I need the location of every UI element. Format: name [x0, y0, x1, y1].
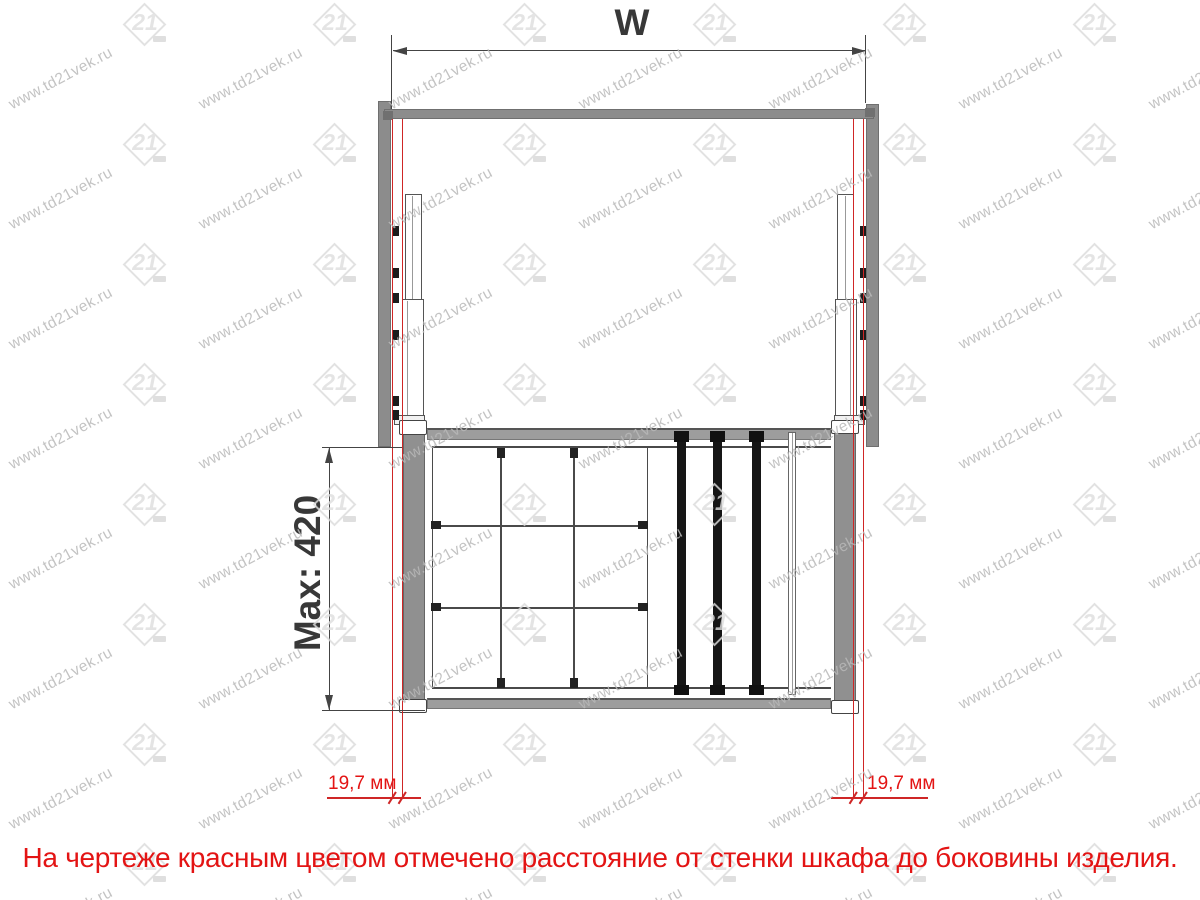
wire-connector [497, 448, 505, 458]
watermark-logo-tag [1103, 876, 1116, 882]
watermark-text: www.td21vek.ru [576, 44, 686, 114]
watermark-logo-number: 21 [321, 9, 349, 36]
watermark-text: www.td21vek.ru [956, 404, 1066, 474]
max-extension-bottom [322, 710, 425, 711]
watermark-logo-number: 21 [891, 609, 919, 636]
watermark-diamond-outline [503, 123, 547, 167]
watermark-logo-tag [153, 276, 166, 282]
watermark-logo-tag [913, 756, 926, 762]
watermark-logo-tag [1103, 156, 1116, 162]
watermark-21-logo-icon: 21 [122, 722, 168, 768]
watermark-diamond-outline [503, 723, 547, 767]
watermark-logo-number: 21 [701, 369, 729, 396]
rack-slat-foot [674, 685, 689, 695]
watermark-21-logo-icon: 21 [692, 722, 738, 768]
watermark-text: www.td21vek.ru [956, 644, 1066, 714]
watermark-text: www.td21vek.ru [576, 764, 686, 834]
cabinet-right-wall [866, 104, 879, 447]
watermark-21-logo-icon: 21 [502, 2, 548, 48]
watermark-diamond-outline [123, 363, 167, 407]
watermark-diamond-outline [883, 483, 927, 527]
watermark-logo-number: 21 [891, 369, 919, 396]
watermark-logo-number: 21 [891, 129, 919, 156]
watermark-text: www.td21vek.ru [196, 284, 306, 354]
watermark-diamond-outline [883, 123, 927, 167]
watermark-diamond-outline [693, 723, 737, 767]
watermark-text: www.td21vek.ru [196, 764, 306, 834]
watermark-logo-tag [723, 276, 736, 282]
watermark-diamond-outline [123, 483, 167, 527]
watermark-21-logo-icon: 21 [1072, 722, 1118, 768]
watermark-diamond-outline [883, 603, 927, 647]
rack-slat [713, 432, 722, 695]
watermark-21-logo-icon: 21 [882, 482, 928, 528]
watermark-logo-tag [533, 396, 546, 402]
watermark-21-logo-icon: 21 [882, 242, 928, 288]
wire-basket-frame [432, 446, 648, 689]
watermark-text: www.td21vek.ru [1146, 44, 1200, 114]
watermark-logo-number: 21 [701, 249, 729, 276]
rack-slat [752, 432, 761, 695]
rack-slat-head [674, 431, 689, 442]
watermark-diamond-outline [1073, 603, 1117, 647]
watermark-text: www.td21vek.ru [956, 524, 1066, 594]
watermark-logo-tag [723, 396, 736, 402]
watermark-text: www.td21vek.ru [1146, 644, 1200, 714]
watermark-text: www.td21vek.ru [956, 284, 1066, 354]
watermark-logo-tag [913, 276, 926, 282]
max-extension-top [322, 447, 402, 448]
watermark-diamond-outline [1073, 123, 1117, 167]
watermark-21-logo-icon: 21 [1072, 242, 1118, 288]
watermark-logo-tag [723, 876, 736, 882]
watermark-logo-tag [723, 636, 736, 642]
watermark-diamond-outline [1073, 723, 1117, 767]
watermark-logo-tag [343, 156, 356, 162]
watermark-text: www.td21vek.ru [6, 404, 116, 474]
watermark-logo-tag [533, 756, 546, 762]
watermark-diamond-outline [1073, 363, 1117, 407]
watermark-logo-tag [1103, 36, 1116, 42]
watermark-diamond-outline [313, 363, 357, 407]
watermark-logo-tag [913, 396, 926, 402]
watermark-diamond-outline [313, 123, 357, 167]
watermark-21-logo-icon: 21 [1072, 362, 1118, 408]
watermark-text: www.td21vek.ru [6, 164, 116, 234]
watermark-text: www.td21vek.ru [956, 44, 1066, 114]
watermark-21-logo-icon: 21 [312, 242, 358, 288]
watermark-logo-number: 21 [701, 9, 729, 36]
watermark-text: www.td21vek.ru [766, 884, 876, 900]
w-arrow-right [852, 47, 866, 55]
watermark-logo-tag [723, 36, 736, 42]
watermark-logo-number: 21 [131, 729, 159, 756]
watermark-21-logo-icon: 21 [122, 602, 168, 648]
watermark-text: www.td21vek.ru [1146, 884, 1200, 900]
watermark-diamond-outline [1073, 483, 1117, 527]
watermark-diamond-outline [123, 243, 167, 287]
max-dimension-line [329, 448, 330, 710]
watermark-diamond-outline [503, 3, 547, 47]
offset-label-right: 19,7 мм [867, 773, 935, 795]
watermark-logo-tag [153, 396, 166, 402]
watermark-text: www.td21vek.ru [766, 524, 876, 594]
cabinet-left-wall [378, 101, 391, 447]
watermark-21-logo-icon: 21 [882, 122, 928, 168]
watermark-logo-number: 21 [131, 9, 159, 36]
cabinet-corner-right [865, 108, 875, 117]
watermark-logo-number: 21 [131, 129, 159, 156]
right-post-cap-top [831, 420, 859, 434]
watermark-text: www.td21vek.ru [6, 284, 116, 354]
watermark-logo-number: 21 [321, 369, 349, 396]
watermark-logo-tag [913, 36, 926, 42]
watermark-21-logo-icon: 21 [122, 362, 168, 408]
watermark-logo-number: 21 [891, 729, 919, 756]
watermark-logo-tag [153, 636, 166, 642]
watermark-diamond-outline [123, 603, 167, 647]
wire-vertical [573, 447, 575, 688]
basket-bottom-rail [427, 698, 831, 709]
watermark-logo-number: 21 [321, 249, 349, 276]
watermark-logo-number: 21 [131, 609, 159, 636]
watermark-text: www.td21vek.ru [6, 44, 116, 114]
watermark-21-logo-icon: 21 [312, 122, 358, 168]
watermark-21-logo-icon: 21 [882, 722, 928, 768]
watermark-21-logo-icon: 21 [1072, 2, 1118, 48]
watermark-text: www.td21vek.ru [6, 644, 116, 714]
wire-connector [638, 521, 648, 529]
side-rack-gray-slat [788, 432, 796, 695]
watermark-text: www.td21vek.ru [576, 284, 686, 354]
red-marker-left-wall [392, 119, 394, 798]
watermark-21-logo-icon: 21 [312, 2, 358, 48]
watermark-logo-number: 21 [511, 9, 539, 36]
watermark-logo-tag [913, 876, 926, 882]
left-rail-clip [393, 410, 399, 420]
technical-drawing-canvas: www.td21vek.ru21www.td21vek.ru21www.td21… [0, 0, 1200, 900]
watermark-logo-tag [913, 636, 926, 642]
wire-connector [570, 678, 578, 688]
left-rail-lower-line [407, 301, 408, 420]
watermark-logo-number: 21 [131, 249, 159, 276]
w-extension-line-right [865, 35, 866, 103]
watermark-logo-tag [343, 756, 356, 762]
watermark-text: www.td21vek.ru [576, 884, 686, 900]
rack-slat-foot [710, 685, 725, 695]
watermark-logo-tag [153, 756, 166, 762]
watermark-logo-tag [343, 396, 356, 402]
watermark-logo-tag [533, 156, 546, 162]
right-post-cap-bottom [831, 700, 859, 714]
watermark-logo-tag [1103, 636, 1116, 642]
watermark-text: www.td21vek.ru [956, 764, 1066, 834]
watermark-21-logo-icon: 21 [502, 362, 548, 408]
watermark-logo-tag [1103, 396, 1116, 402]
watermark-logo-number: 21 [701, 729, 729, 756]
watermark-diamond-outline [123, 3, 167, 47]
watermark-logo-tag [1103, 516, 1116, 522]
watermark-logo-tag [343, 876, 356, 882]
wire-horizontal [432, 525, 648, 527]
offset-dim-line-right [831, 797, 928, 799]
watermark-21-logo-icon: 21 [122, 2, 168, 48]
watermark-logo-tag [533, 876, 546, 882]
watermark-21-logo-icon: 21 [122, 122, 168, 168]
watermark-diamond-outline [313, 243, 357, 287]
watermark-logo-number: 21 [1081, 609, 1109, 636]
watermark-21-logo-icon: 21 [122, 482, 168, 528]
left-rail-lower-member [402, 299, 424, 422]
watermark-21-logo-icon: 21 [502, 242, 548, 288]
caption-text: На чертеже красным цветом отмечено расст… [0, 842, 1200, 874]
watermark-21-logo-icon: 21 [122, 242, 168, 288]
watermark-logo-tag [913, 516, 926, 522]
watermark-text: www.td21vek.ru [576, 164, 686, 234]
w-arrow-left [393, 47, 407, 55]
watermark-diamond-outline [1073, 243, 1117, 287]
watermark-21-logo-icon: 21 [312, 722, 358, 768]
offset-label-left: 19,7 мм [328, 773, 396, 795]
watermark-diamond-outline [883, 243, 927, 287]
watermark-21-logo-icon: 21 [692, 362, 738, 408]
watermark-diamond-outline [123, 723, 167, 767]
rack-slat-head [710, 431, 725, 442]
left-rail-clip [393, 330, 399, 340]
watermark-logo-number: 21 [131, 489, 159, 516]
watermark-21-logo-icon: 21 [692, 2, 738, 48]
watermark-logo-number: 21 [511, 249, 539, 276]
watermark-text: www.td21vek.ru [196, 44, 306, 114]
watermark-text: www.td21vek.ru [6, 524, 116, 594]
rack-slat-head [749, 431, 764, 442]
watermark-text: www.td21vek.ru [6, 764, 116, 834]
watermark-logo-tag [153, 156, 166, 162]
wire-connector [431, 603, 441, 611]
watermark-text: www.td21vek.ru [766, 764, 876, 834]
watermark-logo-number: 21 [1081, 489, 1109, 516]
max-dimension-label: Max: 420 [287, 423, 329, 723]
wire-connector [431, 521, 441, 529]
watermark-21-logo-icon: 21 [692, 122, 738, 168]
red-marker-right-product [853, 119, 855, 798]
watermark-text: www.td21vek.ru [956, 884, 1066, 900]
watermark-diamond-outline [313, 723, 357, 767]
watermark-21-logo-icon: 21 [692, 242, 738, 288]
watermark-21-logo-icon: 21 [882, 602, 928, 648]
watermark-logo-number: 21 [891, 489, 919, 516]
rack-slat-foot [749, 685, 764, 695]
basket-top-rail [427, 428, 831, 440]
watermark-logo-tag [153, 36, 166, 42]
offset-dim-line-left [327, 797, 421, 799]
watermark-logo-tag [343, 276, 356, 282]
watermark-logo-number: 21 [1081, 9, 1109, 36]
wire-connector [570, 448, 578, 458]
left-side-post [403, 434, 425, 700]
watermark-21-logo-icon: 21 [502, 122, 548, 168]
watermark-logo-number: 21 [891, 249, 919, 276]
watermark-21-logo-icon: 21 [882, 362, 928, 408]
watermark-logo-number: 21 [1081, 729, 1109, 756]
wire-connector [638, 603, 648, 611]
watermark-logo-tag [153, 516, 166, 522]
watermark-logo-tag [343, 516, 356, 522]
watermark-logo-tag [153, 876, 166, 882]
watermark-logo-tag [723, 756, 736, 762]
watermark-21-logo-icon: 21 [882, 2, 928, 48]
wire-horizontal [432, 607, 648, 609]
watermark-logo-number: 21 [1081, 249, 1109, 276]
watermark-diamond-outline [123, 123, 167, 167]
watermark-21-logo-icon: 21 [312, 362, 358, 408]
watermark-logo-tag [723, 516, 736, 522]
watermark-logo-tag [343, 636, 356, 642]
watermark-logo-number: 21 [1081, 129, 1109, 156]
watermark-diamond-outline [313, 3, 357, 47]
watermark-logo-number: 21 [321, 729, 349, 756]
wire-vertical [500, 447, 502, 688]
watermark-logo-number: 21 [511, 729, 539, 756]
red-marker-left-product [402, 119, 404, 798]
watermark-logo-number: 21 [511, 369, 539, 396]
watermark-logo-tag [1103, 756, 1116, 762]
watermark-diamond-outline [883, 723, 927, 767]
watermark-logo-tag [1103, 276, 1116, 282]
left-rail-clip [393, 396, 399, 406]
watermark-diamond-outline [883, 363, 927, 407]
watermark-text: www.td21vek.ru [1146, 524, 1200, 594]
watermark-diamond-outline [503, 243, 547, 287]
watermark-21-logo-icon: 21 [1072, 482, 1118, 528]
watermark-text: www.td21vek.ru [1146, 284, 1200, 354]
watermark-logo-tag [533, 36, 546, 42]
w-dimension-line [393, 50, 866, 51]
watermark-21-logo-icon: 21 [1072, 122, 1118, 168]
watermark-logo-number: 21 [1081, 369, 1109, 396]
watermark-text: www.td21vek.ru [1146, 404, 1200, 474]
watermark-diamond-outline [883, 3, 927, 47]
watermark-21-logo-icon: 21 [502, 722, 548, 768]
watermark-logo-tag [533, 276, 546, 282]
left-rail-clip [393, 268, 399, 278]
watermark-logo-tag [343, 36, 356, 42]
watermark-diamond-outline [1073, 3, 1117, 47]
watermark-logo-tag [913, 156, 926, 162]
watermark-text: www.td21vek.ru [196, 884, 306, 900]
right-rail-lower-line [850, 301, 851, 420]
watermark-logo-number: 21 [131, 369, 159, 396]
watermark-text: www.td21vek.ru [1146, 764, 1200, 834]
left-rail-clip [393, 226, 399, 236]
watermark-diamond-outline [503, 363, 547, 407]
watermark-logo-tag [723, 156, 736, 162]
watermark-logo-number: 21 [511, 129, 539, 156]
watermark-text: www.td21vek.ru [956, 164, 1066, 234]
watermark-logo-number: 21 [891, 9, 919, 36]
watermark-21-logo-icon: 21 [1072, 602, 1118, 648]
cabinet-back-panel [384, 109, 874, 119]
w-extension-line-left [391, 35, 392, 109]
watermark-diamond-outline [693, 3, 737, 47]
watermark-diamond-outline [693, 363, 737, 407]
watermark-text: www.td21vek.ru [6, 884, 116, 900]
watermark-logo-number: 21 [321, 129, 349, 156]
watermark-text: www.td21vek.ru [1146, 164, 1200, 234]
watermark-text: www.td21vek.ru [196, 164, 306, 234]
left-rail-clip [393, 293, 399, 303]
watermark-logo-number: 21 [701, 129, 729, 156]
watermark-diamond-outline [693, 123, 737, 167]
watermark-diamond-outline [693, 243, 737, 287]
left-post-cap-top [399, 420, 427, 435]
red-marker-right-wall [863, 119, 865, 798]
watermark-text: www.td21vek.ru [766, 164, 876, 234]
wire-connector [497, 678, 505, 688]
w-dimension-label: W [600, 2, 664, 44]
rack-slat [677, 432, 686, 695]
watermark-text: www.td21vek.ru [386, 884, 496, 900]
